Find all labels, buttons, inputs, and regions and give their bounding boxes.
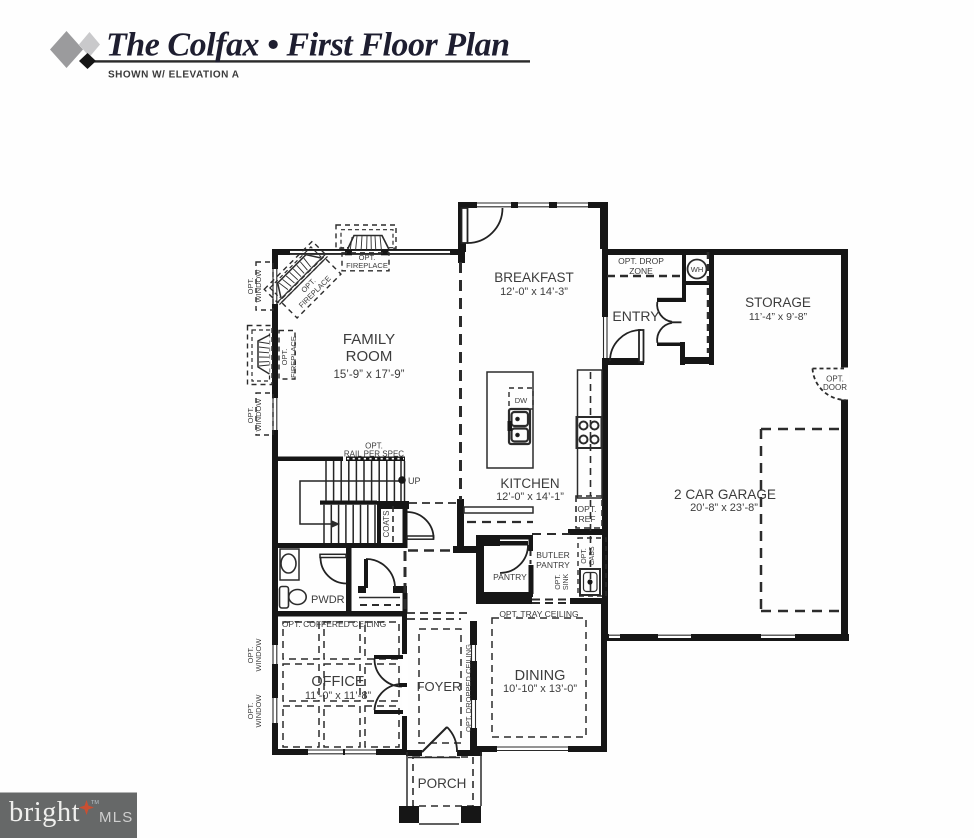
svg-text:BREAKFAST: BREAKFAST: [494, 270, 574, 285]
svg-text:11’-4” x 9’-8”: 11’-4” x 9’-8”: [749, 311, 808, 323]
svg-text:OPT. DROP: OPT. DROP: [618, 256, 664, 266]
svg-text:OPT.: OPT.: [581, 548, 588, 564]
svg-text:ROOM: ROOM: [346, 348, 393, 365]
svg-text:OFFICE: OFFICE: [311, 674, 364, 690]
svg-text:KITCHEN: KITCHEN: [500, 476, 559, 491]
svg-text:PANTRY: PANTRY: [536, 560, 570, 570]
svg-text:COATS: COATS: [382, 511, 391, 538]
svg-text:OPT.: OPT.: [280, 349, 289, 366]
svg-text:10’-10” x 13’-0”: 10’-10” x 13’-0”: [503, 683, 577, 695]
svg-text:MLS: MLS: [99, 809, 133, 826]
svg-text:CABS: CABS: [589, 546, 596, 565]
svg-text:12’-0” x 14’-3”: 12’-0” x 14’-3”: [500, 286, 568, 298]
svg-text:WINDOW: WINDOW: [254, 638, 263, 672]
svg-text:STORAGE: STORAGE: [745, 295, 811, 310]
svg-text:FAMILY: FAMILY: [343, 331, 395, 348]
svg-text:11’-0” x 11’-8”: 11’-0” x 11’-8”: [305, 690, 372, 702]
svg-text:FIREPLACE: FIREPLACE: [289, 336, 298, 378]
svg-text:15’-9” x 17’-9”: 15’-9” x 17’-9”: [334, 369, 405, 381]
svg-text:20’-8” x 23’-8”: 20’-8” x 23’-8”: [690, 502, 758, 514]
svg-text:The Colfax • First Floor Plan: The Colfax • First Floor Plan: [106, 27, 510, 64]
svg-text:ZONE: ZONE: [629, 266, 653, 276]
svg-text:OPT.: OPT.: [578, 504, 597, 514]
svg-text:DINING: DINING: [515, 668, 566, 684]
svg-text:WINDOW: WINDOW: [254, 694, 263, 728]
svg-text:OPT. DROPPED CEILING: OPT. DROPPED CEILING: [464, 644, 473, 732]
svg-text:BUTLER: BUTLER: [536, 550, 570, 560]
svg-text:PORCH: PORCH: [418, 776, 467, 791]
svg-text:SINK: SINK: [563, 574, 570, 591]
svg-text:PWDR: PWDR: [311, 594, 345, 606]
svg-text:SHOWN W/ ELEVATION A: SHOWN W/ ELEVATION A: [108, 70, 239, 81]
svg-text:OPT. COFFERED CEILING: OPT. COFFERED CEILING: [282, 619, 386, 629]
svg-text:OPT. TRAY CEILING: OPT. TRAY CEILING: [499, 609, 578, 619]
svg-text:WINDOW: WINDOW: [254, 269, 263, 303]
svg-text:TM: TM: [91, 800, 99, 806]
svg-text:REF: REF: [579, 514, 596, 524]
svg-text:DOOR: DOOR: [823, 383, 847, 392]
svg-text:DW: DW: [515, 396, 528, 405]
svg-text:WH: WH: [691, 265, 704, 274]
svg-text:PANTRY: PANTRY: [493, 572, 527, 582]
svg-text:OPT.: OPT.: [555, 574, 562, 590]
svg-text:FOYER: FOYER: [417, 679, 462, 694]
svg-text:UP: UP: [408, 476, 421, 486]
svg-text:WINDOW: WINDOW: [254, 398, 263, 432]
svg-text:2 CAR GARAGE: 2 CAR GARAGE: [674, 487, 776, 502]
svg-text:FIREPLACE: FIREPLACE: [346, 261, 388, 270]
svg-text:RAIL PER SPEC: RAIL PER SPEC: [344, 450, 404, 459]
svg-text:12’-0” x 14’-1”: 12’-0” x 14’-1”: [496, 491, 564, 503]
svg-text:ENTRY: ENTRY: [612, 308, 660, 324]
svg-text:bright: bright: [9, 797, 80, 828]
